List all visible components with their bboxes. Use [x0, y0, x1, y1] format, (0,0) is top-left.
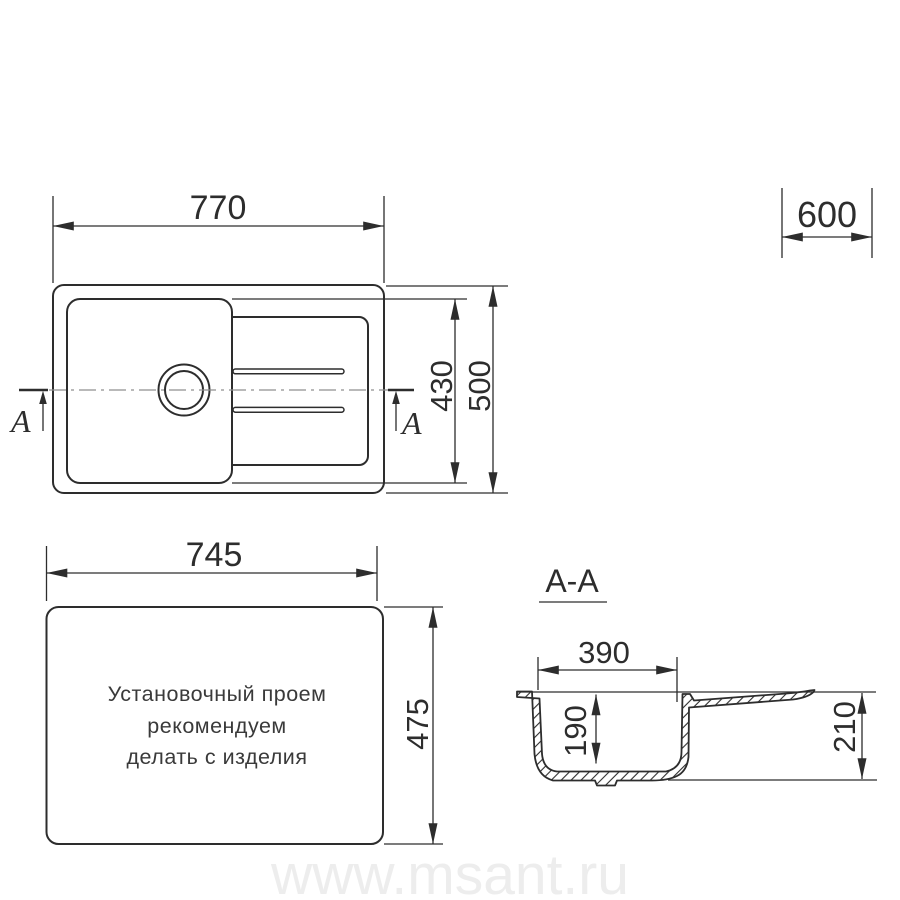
dimension-475: 475 — [384, 607, 443, 844]
dim-label-475: 475 — [400, 698, 435, 750]
section-arrow-up-left — [39, 391, 47, 404]
dimension-600: 600 — [782, 188, 872, 258]
section-letter-right: A — [400, 405, 422, 441]
watermark-text: www.msant.ru — [270, 843, 629, 900]
note-line-1: Установочный проем — [108, 682, 327, 706]
dimension-770: 770 — [53, 189, 384, 283]
top-view: A A 770 430 500 — [9, 189, 508, 493]
dim-label-390: 390 — [578, 635, 630, 670]
dim-label-500: 500 — [462, 360, 497, 412]
dim-label-190: 190 — [558, 705, 593, 757]
dim-label-430: 430 — [424, 360, 459, 412]
dim-label-600: 600 — [797, 194, 857, 235]
section-view: A-A 390 190 210 — [517, 563, 877, 786]
drainboard-groove-bottom — [233, 407, 344, 412]
dimension-210: 210 — [827, 693, 862, 779]
dimension-190: 190 — [558, 695, 596, 764]
note-line-3: делать с изделия — [127, 745, 308, 769]
dim-label-745: 745 — [186, 536, 243, 574]
dim-label-210: 210 — [827, 701, 862, 753]
sink-technical-drawing: A A 770 430 500 — [0, 0, 900, 900]
section-title: A-A — [545, 563, 599, 599]
technical-drawing-page: A A 770 430 500 — [0, 0, 900, 900]
drainboard-groove-top — [233, 369, 344, 374]
section-cut-left: A — [9, 390, 48, 439]
dim-label-770: 770 — [190, 189, 247, 227]
section-arrow-up-right — [392, 391, 400, 404]
drainboard-outline — [224, 317, 368, 465]
section-cut-right: A — [388, 390, 422, 441]
note-line-2: рекомендуем — [147, 714, 286, 738]
cutout-view: 745 475 Установочный проем рекомендуем д… — [47, 536, 444, 844]
section-letter-left: A — [9, 403, 31, 439]
dimension-745: 745 — [47, 536, 378, 601]
